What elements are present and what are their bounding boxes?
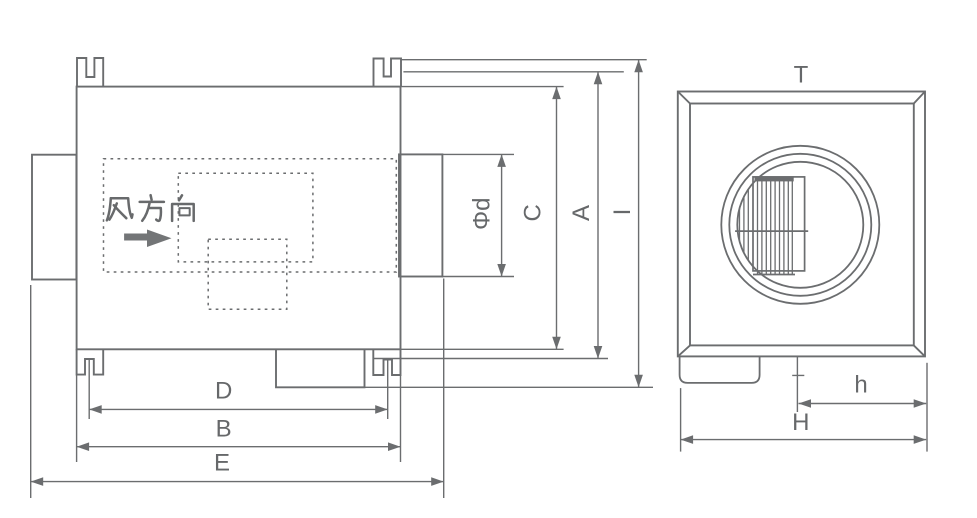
svg-text:T: T [794, 62, 809, 89]
svg-text:C: C [520, 204, 547, 221]
svg-text:A: A [568, 205, 595, 221]
svg-text:h: h [854, 372, 867, 399]
svg-text:Φd: Φd [469, 198, 496, 231]
svg-text:B: B [216, 416, 232, 443]
svg-text:I: I [609, 209, 636, 216]
svg-text:E: E [214, 450, 230, 477]
svg-text:D: D [215, 378, 232, 405]
svg-text:H: H [792, 409, 809, 436]
